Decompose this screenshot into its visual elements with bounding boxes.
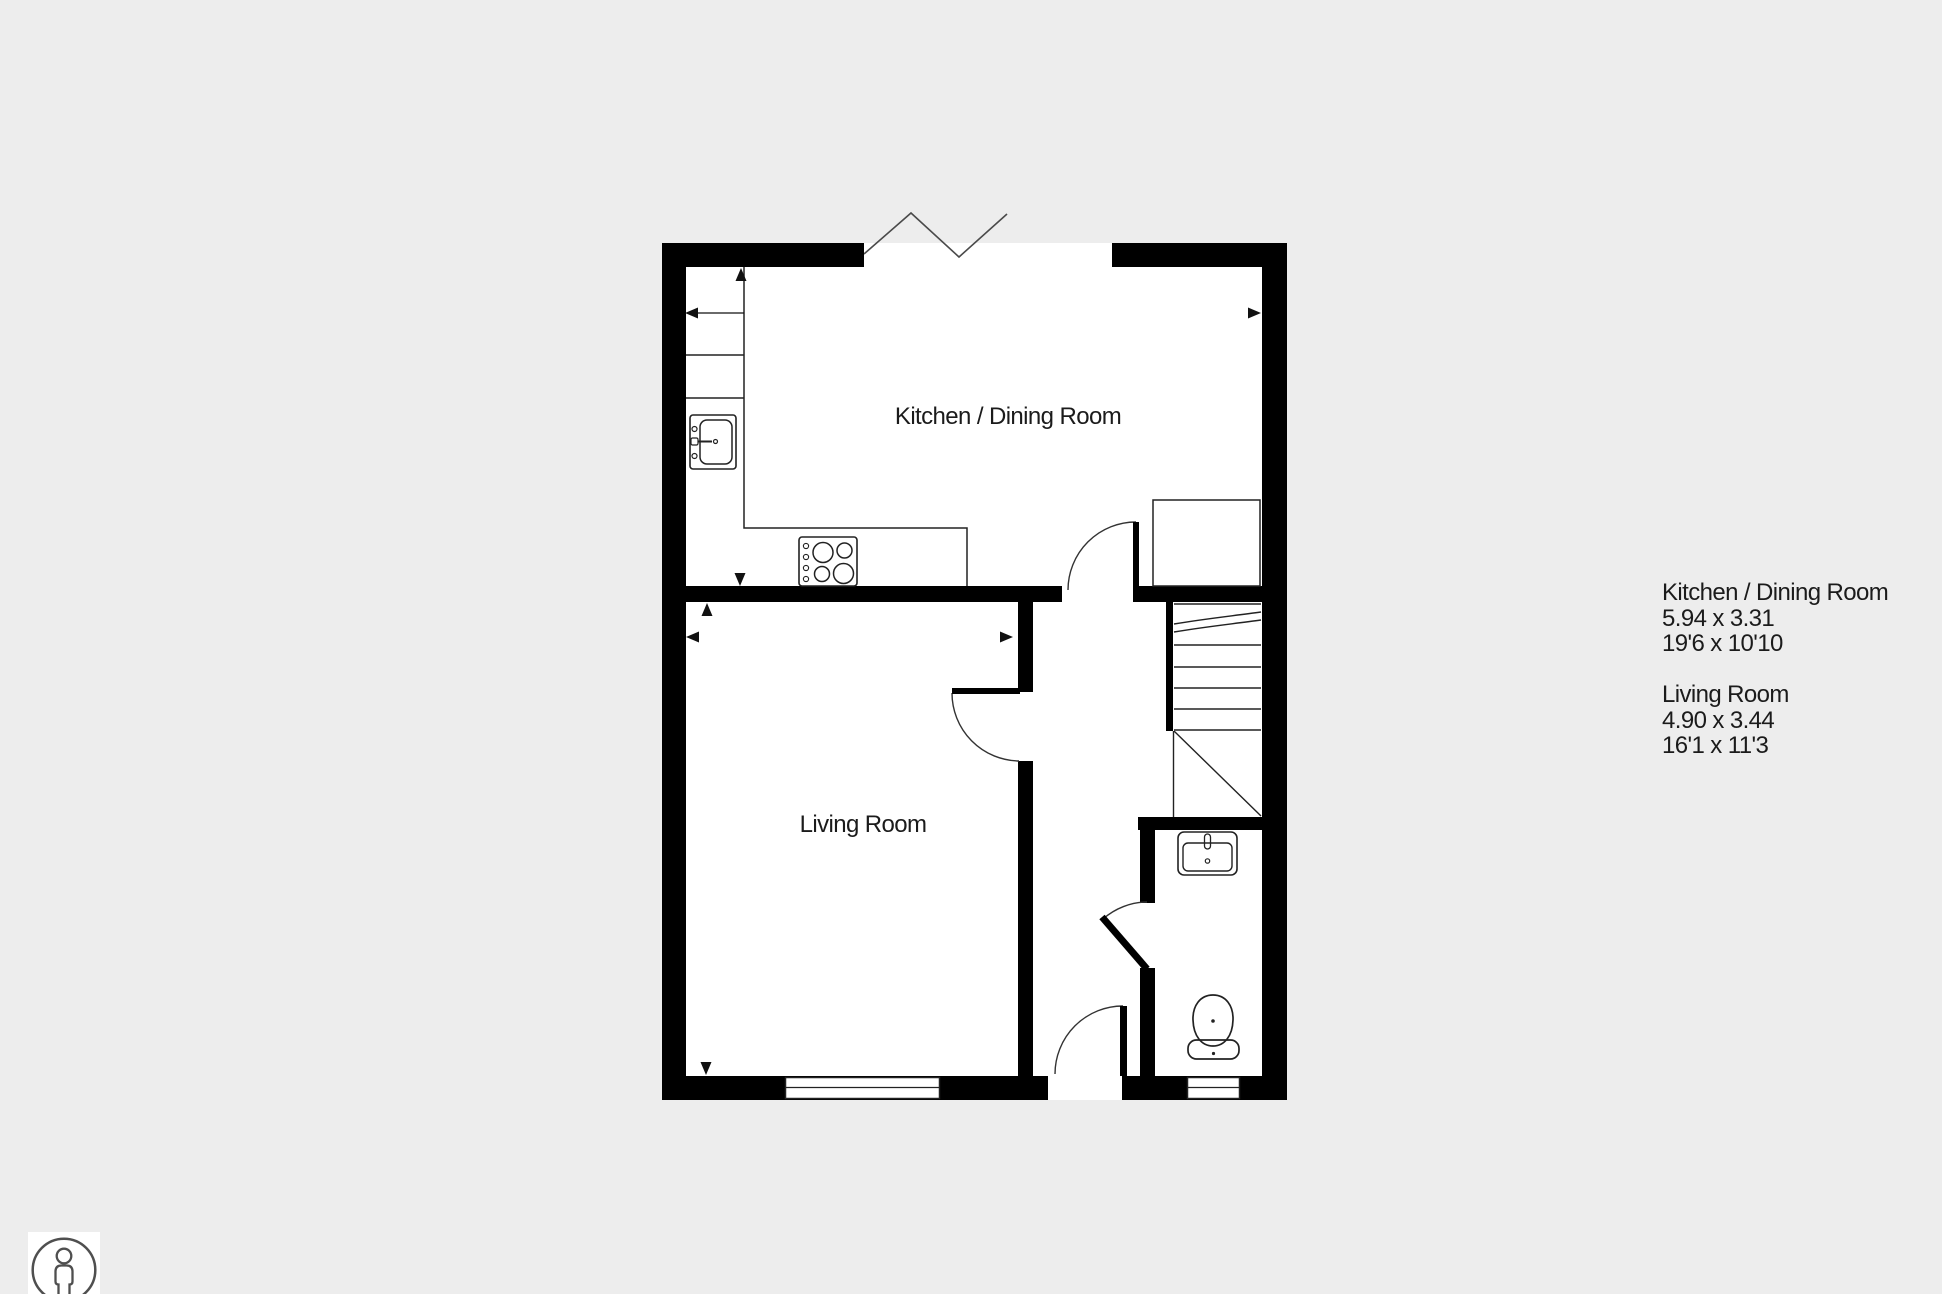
built-in-cupboard-icon: [1153, 500, 1260, 586]
wall-kitchen-hall-divider: [1133, 586, 1262, 602]
living-room-dimensions-metric: 4.90 x 3.44: [1662, 708, 1888, 734]
floor-plan-canvas: [0, 0, 1942, 1294]
wall-bathroom-left-lower: [1140, 968, 1155, 1076]
scale-person-badge: [28, 1232, 100, 1294]
kitchen-dimensions-block: Kitchen / Dining Room 5.94 x 3.31 19'6 x…: [1662, 580, 1888, 657]
living-room-dimensions-block: Living Room 4.90 x 3.44 16'1 x 11'3: [1662, 682, 1888, 759]
kitchen-room-label: Kitchen / Dining Room: [895, 404, 1121, 430]
bathroom-window-icon: [1188, 1078, 1240, 1099]
living-room-label: Living Room: [800, 812, 927, 838]
wall-living-hall-lower: [1018, 761, 1033, 1076]
living-room-dimensions-imperial: 16'1 x 11'3: [1662, 733, 1888, 759]
kitchen-dimensions-metric: 5.94 x 3.31: [1662, 606, 1888, 632]
wall-bathroom-top: [1138, 817, 1262, 830]
living-room-dimensions-name: Living Room: [1662, 682, 1888, 708]
room-dimensions-panel: Kitchen / Dining Room 5.94 x 3.31 19'6 x…: [1662, 580, 1888, 759]
wall-bathroom-left-upper: [1140, 817, 1155, 903]
kitchen-dimensions-name: Kitchen / Dining Room: [1662, 580, 1888, 606]
floor-area: [662, 243, 1287, 1100]
wall-top-left: [662, 243, 864, 267]
wall-kitchen-living-divider: [662, 586, 1062, 602]
front-door-opening: [1048, 1076, 1122, 1100]
person-in-circle-icon: [28, 1232, 100, 1294]
wall-stairwell: [1166, 602, 1173, 731]
wall-living-hall-upper: [1018, 602, 1033, 692]
kitchen-dimensions-imperial: 19'6 x 10'10: [1662, 631, 1888, 657]
wall-left: [662, 243, 686, 1100]
wall-top-right: [1112, 243, 1287, 267]
floorplan-page: Kitchen / Dining Room Living Room Kitche…: [0, 0, 1942, 1294]
wall-right: [1262, 243, 1287, 1100]
living-room-window-icon: [786, 1078, 940, 1099]
